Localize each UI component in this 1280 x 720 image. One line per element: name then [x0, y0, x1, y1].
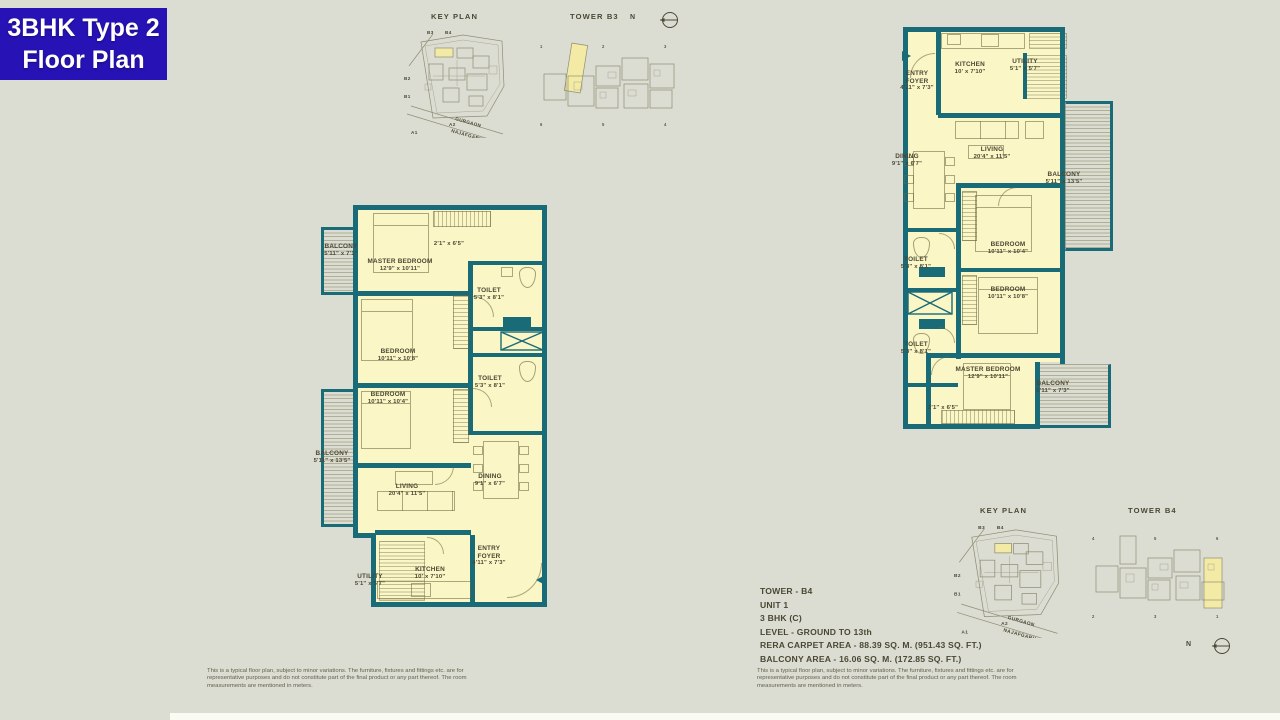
service-duct	[503, 317, 531, 327]
entry-arrow-icon	[536, 575, 545, 585]
site-label-b1: B1	[954, 592, 961, 598]
site-label-b3: B3	[978, 525, 985, 531]
highlighted-unit	[435, 48, 453, 57]
room-label-balcony: BALCONY5'11" x 7'1"	[311, 243, 371, 258]
floor-plan-right: ENTRY FOYER4'11" x 7'3" KITCHEN10' x 7'1…	[903, 25, 1115, 435]
wardrobe-furniture	[453, 295, 469, 349]
room-label-utility: UTILITY5'1" x 5'7"	[335, 573, 405, 588]
unit-number: 4	[1092, 536, 1095, 541]
floor-plan-left: BALCONY5'11" x 7'1" MASTER BEDROOM12'9" …	[315, 203, 560, 615]
site-key-plan-map-top: B3 B4 B2 B1 A2 A1 GURGAON NAJAFGARH	[403, 26, 535, 138]
info-tower: TOWER - B4	[760, 585, 982, 599]
wall	[905, 383, 958, 387]
info-bhk: 3 BHK (C)	[760, 612, 982, 626]
room-label-toilet: TOILET5'3" x 8'1"	[894, 256, 938, 271]
unit-number: 5	[602, 122, 605, 127]
site-label-b4: B4	[997, 525, 1004, 531]
room-label-master-bedroom: MASTER BEDROOM12'9" x 10'11"	[928, 366, 1048, 381]
room-label-bedroom: BEDROOM10'11" x 10'4"	[328, 391, 448, 406]
unit-number: 1	[540, 44, 543, 49]
info-balcony-area: BALCONY AREA - 16.06 SQ. M. (172.85 SQ. …	[760, 653, 982, 667]
wall	[355, 383, 471, 388]
site-label-b3: B3	[427, 30, 434, 35]
site-label-a1: A1	[411, 130, 418, 135]
disclaimer-right: This is a typical floor plan, subject to…	[757, 668, 1037, 690]
info-carpet-area: RERA CARPET AREA - 88.39 SQ. M. (951.43 …	[760, 639, 982, 653]
chair-furniture	[473, 464, 483, 473]
room-label-dining: DINING9'1" x 6'7"	[878, 153, 936, 168]
page-edge-strip	[170, 713, 1280, 720]
room-label-toilet: TOILET5'3" x 8'1"	[468, 375, 512, 390]
highlighted-unit	[1204, 558, 1222, 608]
chair-furniture	[473, 446, 483, 455]
key-plan-title-top: KEY PLAN	[431, 12, 478, 21]
wall	[371, 535, 376, 607]
stove-fixture	[411, 583, 431, 597]
room-label-balcony: BALCONY5'11" x 13'5"	[303, 450, 361, 465]
road-label-gurgaon: GURGAON	[455, 116, 482, 128]
wall	[958, 268, 1065, 272]
chair-furniture	[519, 482, 529, 491]
room-label-master-bedroom: MASTER BEDROOM12'9" x 10'11"	[340, 258, 460, 273]
shaft-icon	[500, 331, 544, 351]
balcony-deck	[1037, 364, 1111, 428]
unit-number: 5	[1154, 536, 1157, 541]
dining-table-furniture	[483, 441, 519, 499]
tower-b4-title: TOWER B4	[1128, 506, 1177, 515]
room-label-bedroom: BEDROOM10'11" x 10'8"	[338, 348, 458, 363]
plan-type-badge: 3BHK Type 2 Floor Plan	[0, 8, 167, 80]
sofa-furniture	[955, 121, 1019, 139]
room-label-balcony: BALCONY5'11" x 7'3"	[1027, 380, 1079, 395]
unit-info-block: TOWER - B4 UNIT 1 3 BHK (C) LEVEL - GROU…	[760, 585, 982, 666]
armchair-furniture	[1025, 121, 1044, 139]
key-plan-title-bottom: KEY PLAN	[980, 506, 1027, 515]
shaft-icon	[907, 291, 953, 315]
wall	[371, 602, 547, 607]
sink-fixture	[947, 34, 961, 45]
compass-icon-top	[658, 8, 682, 32]
chair-furniture	[904, 175, 914, 184]
sink-fixture	[501, 267, 513, 277]
room-label-toilet: TOILET5'3" x 8'1"	[467, 287, 511, 302]
tower-b4-cluster-map: 4 5 6 2 3 1	[1090, 526, 1238, 622]
tower-b3-title: TOWER B3	[570, 12, 619, 21]
chair-furniture	[945, 175, 955, 184]
wardrobe-furniture	[962, 191, 977, 241]
room-label-wardrobe: 2'1" x 6'5"	[419, 241, 479, 248]
highlighted-unit	[995, 543, 1012, 552]
wall	[353, 533, 376, 538]
disclaimer-left: This is a typical floor plan, subject to…	[207, 668, 487, 690]
unit-number: 1	[1216, 614, 1219, 619]
tower-b3-cluster-map: 1 2 3 6 5 4	[538, 34, 686, 130]
chair-furniture	[519, 464, 529, 473]
room-label-bedroom: BEDROOM10'11" x 10'8"	[968, 286, 1048, 301]
wall	[470, 261, 547, 265]
wardrobe-furniture	[453, 389, 469, 443]
stove-fixture	[981, 34, 999, 47]
site-label-b1: B1	[404, 94, 411, 99]
chair-furniture	[945, 193, 955, 202]
unit-number: 6	[1216, 536, 1219, 541]
site-label-b2: B2	[404, 76, 411, 81]
wall	[926, 353, 931, 427]
road-label-gurgaon: GURGAON	[1007, 615, 1036, 629]
site-label-a2: A2	[1001, 621, 1008, 627]
site-label-a1: A1	[961, 629, 968, 635]
unit-number: 3	[664, 44, 667, 49]
unit-number: 2	[602, 44, 605, 49]
room-label-dining: DINING9'1" x 6'7"	[460, 473, 520, 488]
wall	[468, 431, 547, 435]
room-label-bedroom: BEDROOM10'11" x 10'4"	[968, 241, 1048, 256]
wall	[938, 113, 1065, 118]
room-label-utility: UTILITY5'1" x 5'7"	[995, 58, 1055, 73]
road-label-najafgarh: NAJAFGARH	[451, 128, 484, 138]
room-label-toilet: TOILET5'3" x 8'1"	[894, 341, 938, 356]
north-label-bottom: N	[1186, 641, 1191, 648]
room-label-balcony: BALCONY5'11" x 13'5"	[1038, 171, 1090, 186]
site-label-a2: A2	[449, 122, 456, 127]
wall	[353, 205, 547, 210]
site-label-b4: B4	[445, 30, 452, 35]
wall	[468, 353, 547, 357]
unit-number: 3	[1154, 614, 1157, 619]
badge-line-1: 3BHK Type 2	[7, 12, 159, 44]
wall	[542, 205, 547, 607]
info-unit: UNIT 1	[760, 599, 982, 613]
wall	[1060, 27, 1065, 364]
chair-furniture	[519, 446, 529, 455]
unit-number: 4	[664, 122, 667, 127]
unit-number: 6	[540, 122, 543, 127]
room-label-living: LIVING20'4" x 11'5"	[952, 146, 1032, 161]
room-label-wardrobe: 2'1" x 6'5"	[913, 405, 973, 412]
road-label-najafgarh: NAJAFGARH	[1003, 627, 1037, 638]
room-label-entry-foyer: ENTRY FOYER4'11" x 7'3"	[467, 545, 511, 567]
chair-furniture	[904, 193, 914, 202]
wall	[905, 228, 958, 232]
unit-number: 2	[1092, 614, 1095, 619]
info-level: LEVEL - GROUND TO 13th	[760, 626, 982, 640]
wall	[375, 530, 471, 535]
entry-arrow-icon	[902, 51, 911, 61]
wardrobe-furniture	[433, 211, 491, 227]
wall	[903, 27, 1065, 32]
site-label-b2: B2	[954, 573, 961, 579]
floor-plan-page: { "badge": { "line1": "3BHK Type 2", "li…	[0, 0, 1280, 720]
badge-line-2: Floor Plan	[22, 44, 144, 76]
compass-icon-bottom	[1210, 634, 1234, 658]
wall	[903, 424, 1039, 429]
room-label-living: LIVING20'4" x 11'5"	[347, 483, 467, 498]
north-label-top: N	[630, 14, 635, 21]
site-key-plan-map-bottom: B3 B4 B2 B1 A2 A1 GURGAON NAJAFGARH	[953, 520, 1091, 638]
